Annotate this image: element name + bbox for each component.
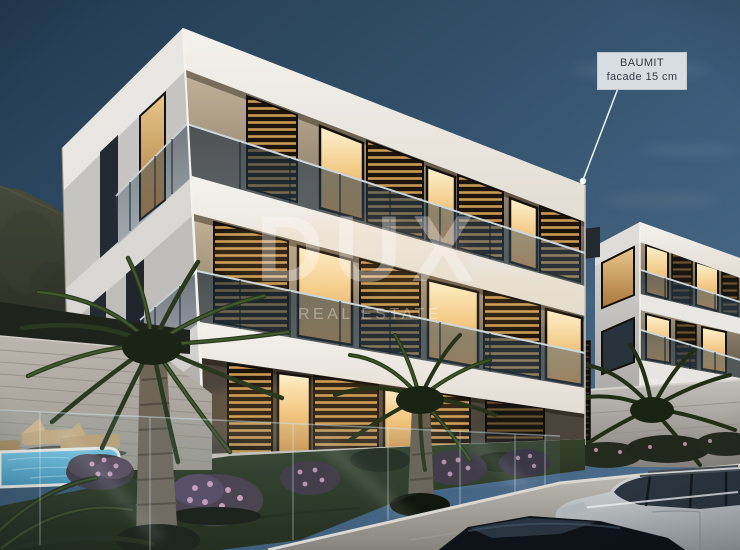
baumit-facade-label-title: BAUMIT bbox=[598, 56, 686, 70]
baumit-facade-label: BAUMIT facade 15 cm bbox=[597, 52, 687, 90]
property-render-image: DUX REAL ESTATE BAUMIT facade 15 cm bbox=[0, 0, 740, 550]
baumit-facade-label-detail: facade 15 cm bbox=[598, 70, 686, 84]
